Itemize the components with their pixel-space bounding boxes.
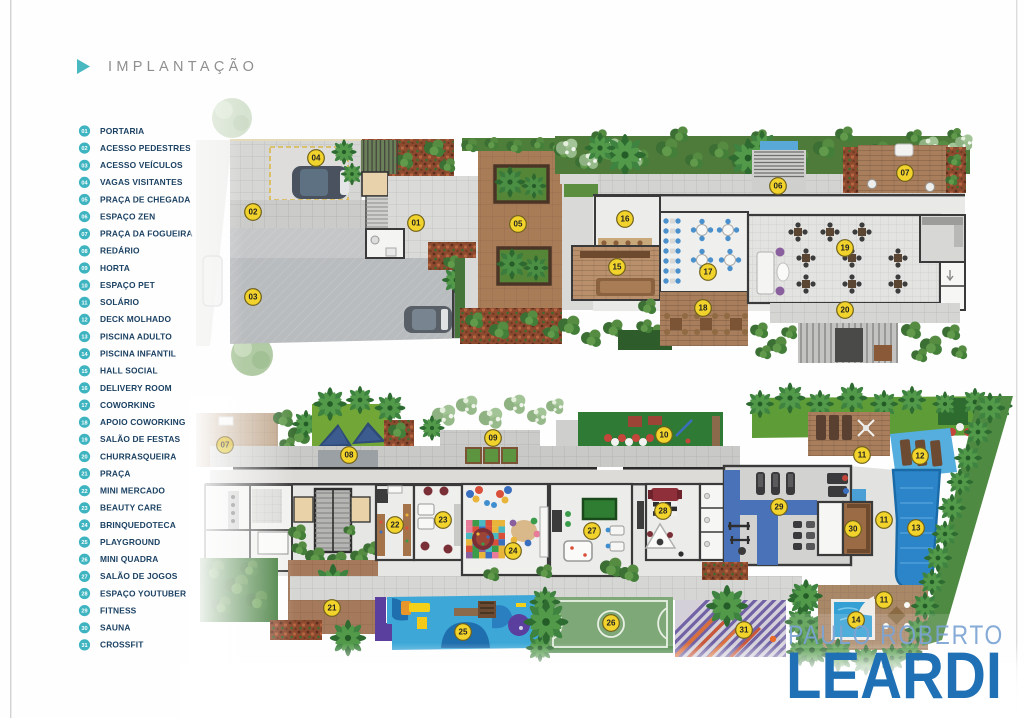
svg-text:18: 18 [81, 420, 87, 426]
svg-text:04: 04 [81, 181, 88, 187]
svg-text:COWORKING: COWORKING [100, 400, 155, 410]
svg-text:SOLÁRIO: SOLÁRIO [100, 296, 140, 307]
svg-text:ACESSO PEDESTRES: ACESSO PEDESTRES [100, 143, 191, 153]
svg-text:VAGAS VISITANTES: VAGAS VISITANTES [100, 177, 183, 187]
svg-text:08: 08 [345, 451, 354, 460]
svg-text:ESPAÇO ZEN: ESPAÇO ZEN [100, 211, 155, 221]
svg-text:SALÃO DE JOGOS: SALÃO DE JOGOS [100, 571, 178, 581]
svg-text:DECK MOLHADO: DECK MOLHADO [100, 314, 171, 324]
svg-text:HORTA: HORTA [100, 263, 130, 273]
svg-text:02: 02 [81, 146, 87, 152]
svg-text:06: 06 [774, 182, 783, 191]
svg-text:14: 14 [81, 352, 88, 358]
svg-text:IMPLANTAÇÃO: IMPLANTAÇÃO [108, 58, 258, 75]
svg-text:21: 21 [81, 472, 87, 478]
svg-text:09: 09 [489, 434, 498, 443]
svg-text:03: 03 [81, 163, 87, 169]
svg-text:07: 07 [81, 232, 87, 238]
svg-text:16: 16 [621, 215, 630, 224]
svg-text:23: 23 [439, 516, 448, 525]
svg-text:12: 12 [916, 452, 925, 461]
svg-text:09: 09 [81, 266, 87, 272]
svg-text:27: 27 [81, 575, 87, 581]
svg-text:BRINQUEDOTECA: BRINQUEDOTECA [100, 520, 176, 530]
svg-text:15: 15 [613, 263, 622, 272]
svg-text:DELIVERY ROOM: DELIVERY ROOM [100, 383, 172, 393]
svg-text:05: 05 [81, 198, 87, 204]
svg-text:LEARDI: LEARDI [786, 638, 1002, 712]
svg-text:FITNESS: FITNESS [100, 605, 137, 615]
svg-text:29: 29 [775, 503, 784, 512]
svg-text:25: 25 [459, 628, 468, 637]
svg-text:ESPAÇO PET: ESPAÇO PET [100, 280, 156, 290]
svg-text:30: 30 [849, 525, 858, 534]
svg-text:10: 10 [81, 283, 87, 289]
svg-text:11: 11 [880, 516, 889, 525]
svg-text:11: 11 [880, 596, 889, 605]
svg-text:HALL SOCIAL: HALL SOCIAL [100, 366, 158, 376]
svg-text:20: 20 [841, 306, 850, 315]
svg-text:21: 21 [328, 604, 337, 613]
svg-text:13: 13 [912, 524, 921, 533]
svg-text:BEAUTY CARE: BEAUTY CARE [100, 503, 162, 513]
svg-text:23: 23 [81, 506, 87, 512]
svg-text:22: 22 [391, 521, 400, 530]
svg-text:19: 19 [81, 437, 87, 443]
svg-text:17: 17 [81, 403, 87, 409]
svg-text:24: 24 [509, 547, 518, 556]
svg-text:11: 11 [858, 451, 867, 460]
svg-text:PRAÇA DA FOGUEIRA: PRAÇA DA FOGUEIRA [100, 229, 193, 239]
svg-text:13: 13 [81, 335, 87, 341]
svg-text:REDÁRIO: REDÁRIO [100, 245, 140, 256]
svg-text:26: 26 [81, 557, 87, 563]
svg-text:18: 18 [699, 304, 708, 313]
svg-text:29: 29 [81, 609, 87, 615]
svg-text:26: 26 [607, 619, 616, 628]
svg-text:07: 07 [901, 169, 910, 178]
svg-text:30: 30 [81, 626, 87, 632]
svg-text:APOIO COWORKING: APOIO COWORKING [100, 417, 186, 427]
svg-text:25: 25 [81, 540, 87, 546]
svg-text:22: 22 [81, 489, 87, 495]
svg-text:28: 28 [659, 507, 668, 516]
svg-text:MINI MERCADO: MINI MERCADO [100, 486, 165, 496]
svg-text:16: 16 [81, 386, 87, 392]
svg-text:31: 31 [81, 643, 87, 649]
svg-text:11: 11 [82, 300, 88, 306]
svg-text:PRAÇA: PRAÇA [100, 468, 131, 478]
svg-text:03: 03 [249, 293, 258, 302]
svg-text:ACESSO VEÍCULOS: ACESSO VEÍCULOS [100, 159, 183, 170]
svg-text:08: 08 [81, 249, 87, 255]
svg-text:04: 04 [312, 154, 321, 163]
svg-text:01: 01 [81, 129, 87, 135]
svg-text:17: 17 [704, 268, 713, 277]
svg-text:20: 20 [81, 455, 87, 461]
svg-text:19: 19 [841, 244, 850, 253]
svg-text:01: 01 [412, 219, 421, 228]
svg-text:ESPAÇO YOUTUBER: ESPAÇO YOUTUBER [100, 588, 186, 598]
svg-text:07: 07 [221, 441, 230, 450]
svg-text:12: 12 [81, 318, 87, 324]
svg-text:SAUNA: SAUNA [100, 623, 131, 633]
svg-text:PORTARIA: PORTARIA [100, 126, 144, 136]
svg-text:28: 28 [81, 592, 87, 598]
svg-text:CHURRASQUEIRA: CHURRASQUEIRA [100, 451, 176, 461]
svg-text:SALÃO DE FESTAS: SALÃO DE FESTAS [100, 434, 181, 444]
svg-text:06: 06 [81, 215, 87, 221]
svg-text:02: 02 [249, 208, 258, 217]
svg-text:31: 31 [740, 626, 749, 635]
svg-text:27: 27 [588, 527, 597, 536]
svg-text:MINI QUADRA: MINI QUADRA [100, 554, 158, 564]
svg-text:PLAYGROUND: PLAYGROUND [100, 537, 160, 547]
svg-text:PISCINA INFANTIL: PISCINA INFANTIL [100, 349, 176, 359]
svg-text:05: 05 [514, 220, 523, 229]
svg-text:10: 10 [660, 431, 669, 440]
svg-text:PRAÇA DE CHEGADA: PRAÇA DE CHEGADA [100, 194, 191, 204]
svg-text:CROSSFIT: CROSSFIT [100, 640, 144, 650]
svg-text:PISCINA ADULTO: PISCINA ADULTO [100, 331, 172, 341]
svg-text:24: 24 [81, 523, 88, 529]
svg-text:15: 15 [81, 369, 87, 375]
